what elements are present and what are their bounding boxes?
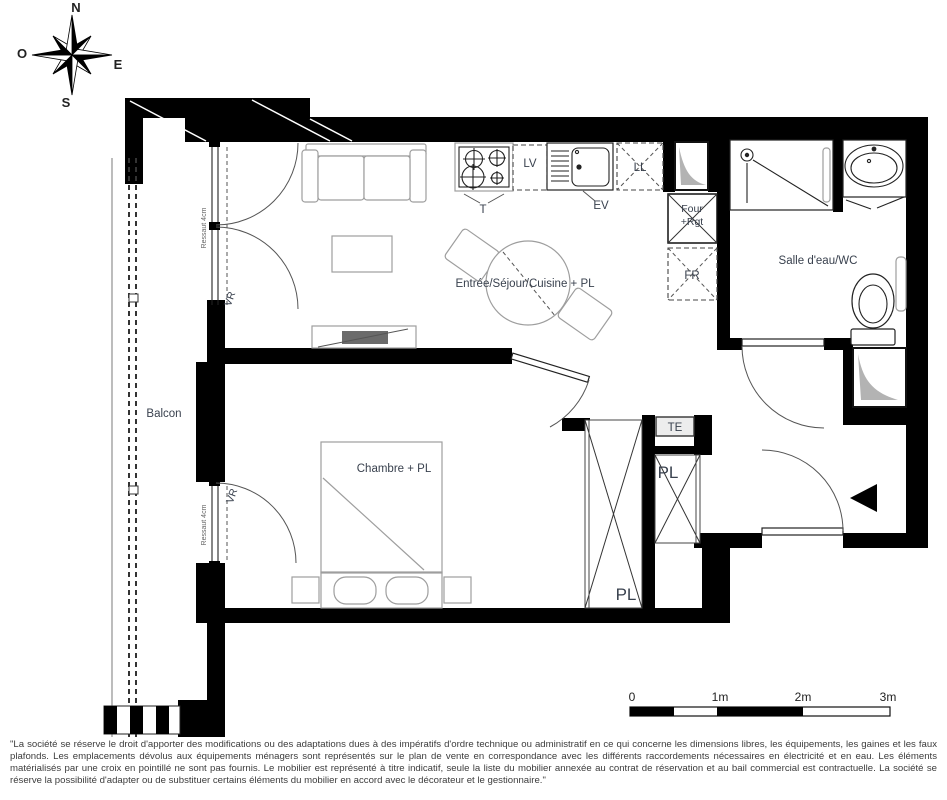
balcony-divider-hatch bbox=[104, 706, 180, 734]
entry-door bbox=[762, 450, 843, 535]
disclaimer-text: "La société se réserve le droit d'apport… bbox=[10, 739, 937, 787]
compass-rose: N O E S bbox=[17, 0, 123, 110]
nightstand bbox=[444, 577, 471, 603]
balcony-label: Balcon bbox=[146, 408, 181, 420]
towel-radiator bbox=[896, 257, 906, 311]
closet-bedroom-label: PL bbox=[616, 585, 637, 604]
railing-post bbox=[129, 486, 138, 494]
compass-south-label: S bbox=[62, 95, 71, 110]
fridge-label: FR bbox=[684, 270, 699, 282]
living-room-label: Entrée/Séjour/Cuisine + PL bbox=[455, 278, 595, 290]
coffee-table bbox=[332, 236, 392, 272]
window-swing-arc bbox=[216, 143, 298, 225]
step-living-label: Ressaut 4cm bbox=[201, 207, 208, 248]
duct-hall bbox=[853, 348, 906, 407]
floor-plan-page: N O E S bbox=[0, 0, 947, 800]
closet-bedroom bbox=[585, 420, 642, 608]
washing-machine-label: LL bbox=[634, 162, 647, 174]
sofa bbox=[302, 144, 426, 202]
scale-tick-1m: 1m bbox=[712, 690, 729, 704]
dishwasher-label: LV bbox=[523, 158, 537, 170]
nightstand bbox=[292, 577, 319, 603]
step-bedroom-label: Ressaut 4cm bbox=[201, 504, 208, 545]
pillow bbox=[386, 577, 428, 604]
bedroom-window: VR Ressaut 4cm bbox=[201, 479, 296, 568]
closet-hall-label: PL bbox=[658, 463, 679, 482]
oven-label-line1: Four bbox=[681, 203, 703, 215]
shower bbox=[730, 140, 833, 210]
balcony: Balcon bbox=[104, 158, 182, 737]
bedroom-door bbox=[511, 353, 589, 427]
bathroom-label: Salle d'eau/WC bbox=[779, 255, 858, 267]
hob-label: T bbox=[479, 204, 486, 216]
duct-kitchen bbox=[675, 142, 708, 190]
pillow bbox=[334, 577, 376, 604]
toilet bbox=[851, 274, 895, 345]
scale-bar: 0 1m 2m 3m bbox=[629, 690, 897, 716]
electrical-panel-label: TE bbox=[668, 422, 683, 434]
scale-tick-0: 0 bbox=[629, 690, 636, 704]
tv-sideboard bbox=[312, 326, 416, 348]
compass-east-label: E bbox=[114, 57, 123, 72]
oven-label-line2: +Rgt bbox=[681, 216, 704, 228]
fridge-box: FR bbox=[668, 248, 717, 300]
bedroom-label: Chambre + PL bbox=[357, 463, 432, 475]
railing-post bbox=[129, 294, 138, 302]
floor-plan-drawing: N O E S bbox=[0, 0, 947, 738]
oven-unit: Four +Rgt bbox=[668, 194, 717, 243]
electrical-panel: TE bbox=[656, 417, 694, 436]
living-window: VR Ressaut 4cm bbox=[201, 139, 298, 313]
compass-north-label: N bbox=[71, 0, 80, 15]
kitchen-sink bbox=[547, 143, 613, 201]
compass-west-label: O bbox=[17, 46, 27, 61]
scale-tick-3m: 3m bbox=[880, 690, 897, 704]
roller-shutter-living-label: VR bbox=[222, 290, 238, 308]
scale-tick-2m: 2m bbox=[795, 690, 812, 704]
bathroom-door bbox=[742, 339, 824, 428]
washbasin bbox=[843, 140, 906, 209]
hob bbox=[455, 143, 513, 203]
entrance-arrow bbox=[850, 484, 877, 512]
sink-label: EV bbox=[593, 200, 609, 212]
